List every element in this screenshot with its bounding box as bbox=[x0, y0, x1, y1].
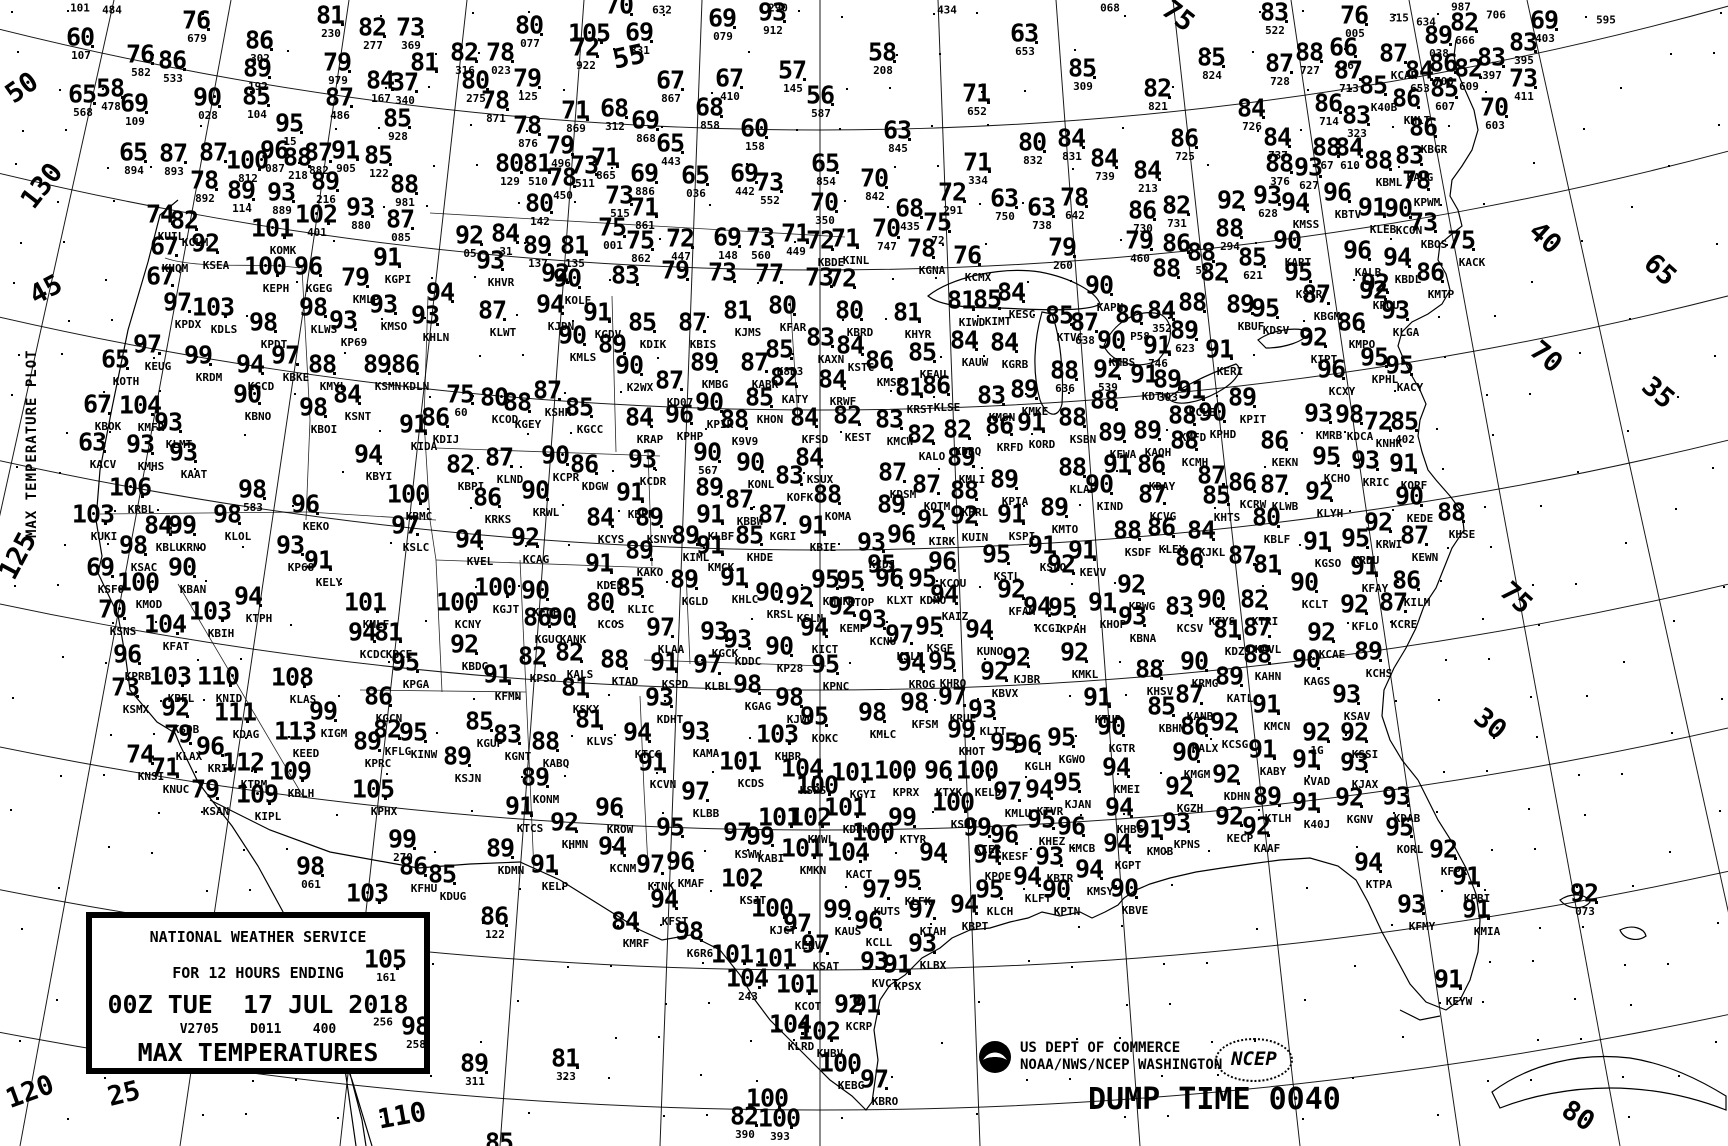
station-location-dot bbox=[1441, 280, 1444, 283]
station-max-temp: 72 bbox=[666, 226, 694, 251]
station-max-temp: 98 bbox=[238, 477, 266, 502]
station-id: KBAN bbox=[147, 583, 239, 596]
station-max-temp: 91 bbox=[373, 245, 401, 270]
station-max-temp: 85 bbox=[465, 709, 493, 734]
station-location-dot bbox=[1197, 760, 1200, 763]
station-max-temp: 98 bbox=[1335, 402, 1363, 427]
station-max-temp: 93 bbox=[1351, 448, 1379, 473]
station-max-temp: 93 bbox=[858, 607, 886, 632]
station-max-temp: 85 bbox=[364, 143, 392, 168]
station-max-temp: 91 bbox=[1083, 685, 1111, 710]
station-max-temp: 85 bbox=[765, 337, 793, 362]
station-location-dot bbox=[1235, 730, 1238, 733]
station-max-temp: 86 bbox=[480, 904, 508, 929]
station-max-temp: 70 bbox=[872, 216, 900, 241]
side-label-max-temperature-plot: MAX TEMPERATURE PLOT bbox=[24, 288, 40, 538]
station-max-temp: 98 bbox=[900, 690, 928, 715]
station-max-temp: 95 bbox=[1341, 526, 1369, 551]
station-max-temp: 95 bbox=[811, 567, 839, 592]
station-location-dot bbox=[695, 587, 698, 590]
station-location-dot bbox=[681, 88, 684, 91]
station-max-temp: 92 bbox=[1060, 640, 1088, 665]
station-max-temp: 69 bbox=[730, 161, 758, 186]
station-max-temp: 90 bbox=[1395, 484, 1423, 509]
station-max-temp: 90 bbox=[521, 478, 549, 503]
station-location-dot bbox=[580, 660, 583, 663]
station-location-dot bbox=[1093, 76, 1096, 79]
station-location-dot bbox=[655, 215, 658, 218]
station-max-temp: 85 bbox=[485, 1130, 513, 1146]
station-location-dot bbox=[1534, 50, 1537, 53]
station-max-temp: 87 bbox=[485, 445, 513, 470]
station-location-dot bbox=[933, 951, 936, 954]
station-max-temp: 71 bbox=[591, 145, 619, 170]
station-max-temp: 67 bbox=[146, 264, 174, 289]
station-max-temp: 93 bbox=[1294, 155, 1322, 180]
station-max-temp: 87 bbox=[1138, 482, 1166, 507]
station-location-dot bbox=[394, 312, 397, 315]
station-location-dot bbox=[1298, 248, 1301, 251]
station-max-temp: 95 bbox=[1027, 807, 1055, 832]
station-location-dot bbox=[753, 886, 756, 889]
station-id: KCOS bbox=[565, 618, 657, 631]
station-location-dot bbox=[1110, 492, 1113, 495]
station-location-dot bbox=[215, 188, 218, 191]
station-max-temp: 75 bbox=[923, 210, 951, 235]
station-location-dot bbox=[1375, 574, 1378, 577]
station-max-temp: 87 bbox=[1379, 590, 1407, 615]
station-location-dot bbox=[471, 402, 474, 405]
station-aux-number: 109 bbox=[115, 115, 155, 128]
station-location-dot bbox=[1142, 592, 1145, 595]
station-max-temp: 84 bbox=[333, 382, 361, 407]
station-location-dot bbox=[625, 116, 628, 119]
station-location-dot bbox=[942, 527, 945, 530]
station-location-dot bbox=[378, 901, 381, 904]
station-max-temp: 94 bbox=[1102, 755, 1130, 780]
station-max-temp: 73 bbox=[708, 260, 736, 285]
station-location-dot bbox=[706, 799, 709, 802]
station-id: KBOI bbox=[278, 423, 370, 436]
station-location-dot bbox=[508, 682, 511, 685]
station-max-temp: 60 bbox=[740, 116, 768, 141]
station-aux-number: 747 bbox=[867, 240, 907, 253]
station-location-dot bbox=[653, 467, 656, 470]
station-max-temp: 93 bbox=[476, 248, 504, 273]
station-max-temp: 84 bbox=[1237, 96, 1265, 121]
station-location-dot bbox=[918, 887, 921, 890]
station-location-dot bbox=[384, 797, 387, 800]
station-max-temp: 81 bbox=[560, 233, 588, 258]
station-location-dot bbox=[1273, 757, 1276, 760]
station-location-dot bbox=[953, 569, 956, 572]
station-max-temp: 93 bbox=[645, 685, 673, 710]
station-aux-number: 401 bbox=[297, 226, 337, 239]
station-max-temp: 97 bbox=[860, 1067, 888, 1092]
station-max-temp: 88 bbox=[1170, 428, 1198, 453]
station-aux-number: 858 bbox=[690, 119, 730, 132]
station-max-temp: 75 bbox=[446, 382, 474, 407]
station-location-dot bbox=[511, 856, 514, 859]
station-location-dot bbox=[321, 874, 324, 877]
station-aux-number: 522 bbox=[1255, 24, 1295, 37]
station-location-dot bbox=[611, 610, 614, 613]
station-location-dot bbox=[536, 545, 539, 548]
dump-time-text: DUMP TIME 0040 bbox=[1088, 1082, 1341, 1117]
station-location-dot bbox=[1328, 549, 1331, 552]
station-aux-number: 621 bbox=[1233, 269, 1273, 282]
station-max-temp: 87 bbox=[1334, 58, 1362, 83]
station-aux-number: 061 bbox=[291, 878, 331, 891]
station-location-dot bbox=[893, 60, 896, 63]
station-max-temp: 82 bbox=[1162, 193, 1190, 218]
station-location-dot bbox=[912, 542, 915, 545]
station-max-temp: 76 bbox=[182, 8, 210, 33]
station-location-dot bbox=[1277, 525, 1280, 528]
station-location-dot bbox=[475, 60, 478, 63]
station-max-temp: 94 bbox=[598, 834, 626, 859]
station-max-temp: 73 bbox=[1509, 66, 1537, 91]
station-max-temp: 95 bbox=[1048, 595, 1076, 620]
station-id: KEWN bbox=[1379, 551, 1471, 564]
station-max-temp: 85 bbox=[1068, 56, 1096, 81]
station-location-dot bbox=[897, 236, 900, 239]
station-aux-number: 607 bbox=[1425, 100, 1465, 113]
station-location-dot bbox=[224, 315, 227, 318]
station-max-temp: 84 bbox=[1335, 135, 1363, 160]
station-max-temp: 93 bbox=[1332, 682, 1360, 707]
station-location-dot bbox=[1015, 350, 1018, 353]
station-location-dot bbox=[416, 670, 419, 673]
station-max-temp: 73 bbox=[605, 183, 633, 208]
station-max-temp: 98 bbox=[296, 854, 324, 879]
station-max-temp: 85 bbox=[1202, 483, 1230, 508]
station-aux-number: 821 bbox=[1138, 100, 1178, 113]
station-location-dot bbox=[104, 522, 107, 525]
station-location-dot bbox=[823, 533, 826, 536]
station-location-dot bbox=[1138, 538, 1141, 541]
station-location-dot bbox=[879, 928, 882, 931]
station-location-dot bbox=[176, 775, 179, 778]
station-location-dot bbox=[877, 1012, 880, 1015]
station-max-temp: 94 bbox=[1105, 795, 1133, 820]
station-max-temp: 88 bbox=[1168, 403, 1196, 428]
station-location-dot bbox=[968, 437, 971, 440]
station-max-temp: 82 bbox=[518, 644, 546, 669]
station-location-dot bbox=[653, 330, 656, 333]
station-max-temp: 91 bbox=[331, 138, 359, 163]
station-max-temp: 90 bbox=[1292, 647, 1320, 672]
station-aux-number: 260 bbox=[1043, 259, 1083, 272]
station-location-dot bbox=[586, 118, 589, 121]
station-max-temp: 91 bbox=[583, 300, 611, 325]
station-location-dot bbox=[790, 825, 793, 828]
station-location-dot bbox=[972, 465, 975, 468]
station-id: KACT bbox=[813, 868, 905, 881]
station-max-temp: 85 bbox=[628, 310, 656, 335]
minor-mark-number: 256 bbox=[373, 1016, 393, 1029]
station-location-dot bbox=[1172, 535, 1175, 538]
station-max-temp: 99 bbox=[184, 343, 212, 368]
station-location-dot bbox=[1035, 397, 1038, 400]
station-id: KFAT bbox=[130, 640, 222, 653]
station-location-dot bbox=[720, 495, 723, 498]
station-location-dot bbox=[503, 318, 506, 321]
station-max-temp: 89 bbox=[363, 352, 391, 377]
station-aux-number: 587 bbox=[801, 107, 841, 120]
station-max-temp: 103 bbox=[192, 295, 234, 320]
station-location-dot bbox=[883, 720, 886, 723]
station-location-dot bbox=[820, 465, 823, 468]
station-location-dot bbox=[558, 398, 561, 401]
station-max-temp: 78 bbox=[486, 40, 514, 65]
station-max-temp: 91 bbox=[720, 565, 748, 590]
station-max-temp: 101 bbox=[719, 749, 761, 774]
station-max-temp: 89 bbox=[690, 350, 718, 375]
station-location-dot bbox=[815, 425, 818, 428]
station-max-temp: 97 bbox=[391, 513, 419, 538]
station-max-temp: 97 bbox=[993, 779, 1021, 804]
station-id: KMLP bbox=[320, 293, 412, 306]
station-location-dot bbox=[258, 402, 261, 405]
station-location-dot bbox=[181, 684, 184, 687]
station-max-temp: 108 bbox=[271, 665, 313, 690]
station-location-dot bbox=[1085, 660, 1088, 663]
station-location-dot bbox=[1015, 206, 1018, 209]
station-location-dot bbox=[1360, 422, 1363, 425]
station-max-temp: 80 bbox=[835, 298, 863, 323]
station-location-dot bbox=[543, 664, 546, 667]
station-location-dot bbox=[748, 647, 751, 650]
station-max-temp: 86 bbox=[421, 405, 449, 430]
station-location-dot bbox=[1365, 612, 1368, 615]
station-location-dot bbox=[640, 373, 643, 376]
station-location-dot bbox=[1007, 562, 1010, 565]
station-location-dot bbox=[1073, 255, 1076, 258]
station-max-temp: 86 bbox=[1175, 545, 1203, 570]
station-max-temp: 63 bbox=[1010, 21, 1038, 46]
station-location-dot bbox=[1285, 20, 1288, 23]
station-max-temp: 99 bbox=[947, 717, 975, 742]
station-location-dot bbox=[506, 108, 509, 111]
station-max-temp: 70 bbox=[98, 597, 126, 622]
station-max-temp: 92 bbox=[1340, 720, 1368, 745]
station-location-dot bbox=[416, 533, 419, 536]
station-max-temp: 90 bbox=[1110, 876, 1138, 901]
station-location-dot bbox=[1379, 659, 1382, 662]
station-location-dot bbox=[745, 585, 748, 588]
station-location-dot bbox=[1285, 448, 1288, 451]
station-location-dot bbox=[671, 635, 674, 638]
station-location-dot bbox=[144, 553, 147, 556]
station-max-temp: 85 bbox=[242, 84, 270, 109]
station-location-dot bbox=[780, 281, 783, 284]
station-location-dot bbox=[650, 425, 653, 428]
station-max-temp: 71 bbox=[151, 755, 179, 780]
minor-mark-number: 101 bbox=[70, 2, 90, 15]
station-location-dot bbox=[1365, 23, 1368, 26]
station-location-dot bbox=[111, 575, 114, 578]
station-max-temp: 98 bbox=[401, 1014, 429, 1039]
station-id: KSLC bbox=[370, 541, 462, 554]
station-max-temp: 91 bbox=[1292, 747, 1320, 772]
station-max-temp: 90 bbox=[1384, 196, 1412, 221]
station-location-dot bbox=[1251, 312, 1254, 315]
station-max-temp: 96 bbox=[666, 849, 694, 874]
station-location-dot bbox=[446, 425, 449, 428]
station-max-temp: 87 bbox=[1243, 615, 1271, 640]
station-max-temp: 86 bbox=[865, 348, 893, 373]
station-max-temp: 100 bbox=[819, 1051, 861, 1076]
station-location-dot bbox=[151, 452, 154, 455]
station-max-temp: 97 bbox=[693, 652, 721, 677]
station-max-temp: 94 bbox=[930, 582, 958, 607]
station-max-temp: 95 bbox=[836, 568, 864, 593]
station-max-temp: 86 bbox=[1128, 198, 1156, 223]
station-max-temp: 96 bbox=[1323, 180, 1351, 205]
credit-org-text: NOAA/NWS/NCEP WASHINGTON bbox=[1020, 1057, 1222, 1073]
station-max-temp: 96 bbox=[1343, 238, 1371, 263]
station-max-temp: 68 bbox=[695, 95, 723, 120]
station-aux-number: 842 bbox=[855, 190, 895, 203]
station-id: KP68 bbox=[255, 561, 347, 574]
station-location-dot bbox=[108, 412, 111, 415]
station-max-temp: 83 bbox=[977, 383, 1005, 408]
station-location-dot bbox=[853, 286, 856, 289]
station-max-temp: 87 bbox=[740, 350, 768, 375]
station-aux-number: 142 bbox=[520, 215, 560, 228]
station-max-temp: 91 bbox=[696, 533, 724, 558]
station-max-temp: 89 bbox=[1040, 495, 1068, 520]
station-location-dot bbox=[830, 1039, 833, 1042]
station-location-dot bbox=[988, 778, 991, 781]
station-location-dot bbox=[209, 363, 212, 366]
station-location-dot bbox=[1376, 468, 1379, 471]
max-temperature-weather-map: MAX TEMPERATURE PLOT NATIONAL WEATHER SE… bbox=[0, 0, 1728, 1146]
station-location-dot bbox=[947, 393, 950, 396]
station-max-temp: 96 bbox=[1057, 814, 1085, 839]
station-max-temp: 110 bbox=[197, 664, 239, 689]
station-location-dot bbox=[193, 575, 196, 578]
station-location-dot bbox=[1487, 917, 1490, 920]
station-max-temp: 87 bbox=[533, 378, 561, 403]
station-max-temp: 106 bbox=[109, 475, 151, 500]
station-location-dot bbox=[396, 967, 399, 970]
station-max-temp: 93 bbox=[154, 410, 182, 435]
station-max-temp: 96 bbox=[1317, 357, 1345, 382]
station-location-dot bbox=[561, 312, 564, 315]
station-max-temp: 94 bbox=[623, 720, 651, 745]
station-location-dot bbox=[691, 246, 694, 249]
station-max-temp: 89 bbox=[1170, 318, 1198, 343]
station-max-temp: 91 bbox=[1434, 967, 1462, 992]
station-max-temp: 103 bbox=[756, 722, 798, 747]
station-max-temp: 84 bbox=[1090, 146, 1118, 171]
station-location-dot bbox=[1324, 345, 1327, 348]
station-location-dot bbox=[123, 617, 126, 620]
station-max-temp: 98 bbox=[213, 502, 241, 527]
station-max-temp: 88 bbox=[1058, 405, 1086, 430]
station-max-temp: 91 bbox=[852, 992, 880, 1017]
station-location-dot bbox=[675, 907, 678, 910]
station-id: KMIA bbox=[1441, 925, 1533, 938]
station-max-temp: 99 bbox=[168, 513, 196, 538]
station-max-temp: 63 bbox=[883, 118, 911, 143]
station-max-temp: 111 bbox=[214, 700, 256, 725]
station-max-temp: 78 bbox=[1402, 168, 1430, 193]
station-max-temp: 84 bbox=[1133, 158, 1161, 183]
station-max-temp: 98 bbox=[299, 295, 327, 320]
station-max-temp: 85 bbox=[616, 575, 644, 600]
station-location-dot bbox=[922, 670, 925, 673]
station-aux-number: 277 bbox=[353, 39, 393, 52]
station-location-dot bbox=[1362, 330, 1365, 333]
station-max-temp: 86 bbox=[1137, 452, 1165, 477]
station-location-dot bbox=[1384, 93, 1387, 96]
station-location-dot bbox=[1420, 504, 1423, 507]
station-location-dot bbox=[1319, 175, 1322, 178]
station-max-temp: 80 bbox=[495, 151, 523, 176]
station-max-temp: 81 bbox=[1253, 552, 1281, 577]
station-max-temp: 81 bbox=[947, 288, 975, 313]
station-location-dot bbox=[988, 170, 991, 173]
station-max-temp: 79 bbox=[661, 258, 689, 283]
station-max-temp: 93 bbox=[1382, 784, 1410, 809]
station-max-temp: 58 bbox=[868, 40, 896, 65]
station-max-temp: 72 bbox=[571, 35, 599, 60]
station-location-dot bbox=[415, 90, 418, 93]
station-max-temp: 91 bbox=[1248, 737, 1276, 762]
station-location-dot bbox=[1160, 837, 1163, 840]
station-location-dot bbox=[975, 348, 978, 351]
station-max-temp: 86 bbox=[1337, 310, 1365, 335]
station-location-dot bbox=[566, 463, 569, 466]
station-max-temp: 83 bbox=[1395, 143, 1423, 168]
station-max-temp: 87 bbox=[1400, 523, 1428, 548]
station-max-temp: 82 bbox=[907, 422, 935, 447]
station-location-dot bbox=[1337, 464, 1340, 467]
station-max-temp: 92 bbox=[1210, 710, 1238, 735]
station-id: KGPT bbox=[1082, 859, 1174, 872]
station-location-dot bbox=[1230, 357, 1233, 360]
station-location-dot bbox=[1262, 116, 1265, 119]
station-aux-number: 894 bbox=[114, 164, 154, 177]
station-id: KP69 bbox=[308, 336, 400, 349]
station-location-dot bbox=[655, 181, 658, 184]
station-max-temp: 93 bbox=[126, 432, 154, 457]
station-max-temp: 85 bbox=[428, 862, 456, 887]
station-location-dot bbox=[918, 320, 921, 323]
station-max-temp: 65 bbox=[101, 347, 129, 372]
station-max-temp: 91 bbox=[1292, 790, 1320, 815]
station-aux-number: 107 bbox=[61, 49, 101, 62]
station-location-dot bbox=[853, 614, 856, 617]
station-max-temp: 91 bbox=[1252, 692, 1280, 717]
station-max-temp: 86 bbox=[473, 485, 501, 510]
station-max-temp: 91 bbox=[505, 794, 533, 819]
station-aux-number: 028 bbox=[188, 109, 228, 122]
station-max-temp: 78 bbox=[907, 236, 935, 261]
station-location-dot bbox=[651, 248, 654, 251]
station-location-dot bbox=[1043, 150, 1046, 153]
station-location-dot bbox=[648, 740, 651, 743]
station-location-dot bbox=[1027, 665, 1030, 668]
station-max-temp: 91 bbox=[1452, 864, 1480, 889]
station-max-temp: 92 bbox=[455, 223, 483, 248]
station-max-temp: 103 bbox=[149, 664, 191, 689]
station-location-dot bbox=[1115, 166, 1118, 169]
station-location-dot bbox=[890, 368, 893, 371]
